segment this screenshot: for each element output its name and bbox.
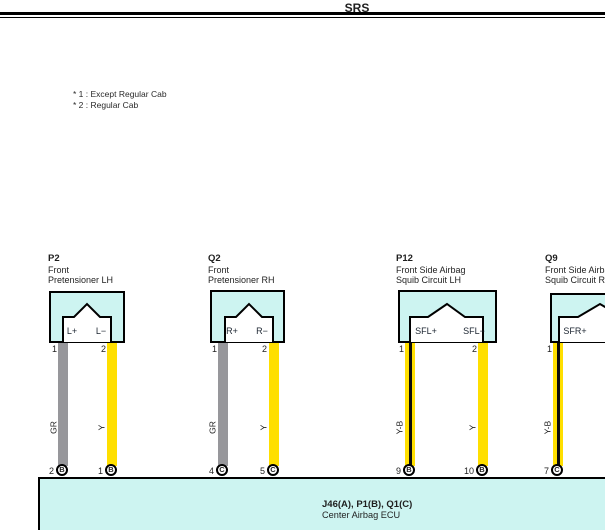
connector-name-line2: Pretensioner LH [48,275,113,285]
ecu-connector-letter-circle: B [56,464,68,476]
footnote-1: * 1 : Except Regular Cab [73,89,167,99]
terminal-label: L− [86,326,116,336]
wire-black-tracer [409,343,412,466]
ecu-connector-letter: B [108,465,113,474]
connector-id-q9: Q9 [545,253,558,264]
wire-y [107,343,117,466]
connector-name-line1: Front [48,265,69,275]
wiring-diagram-page: SRS * 1 : Except Regular Cab * 2 : Regul… [0,0,605,530]
terminal-number: 2 [247,344,267,354]
terminal-label: L+ [57,326,87,336]
wire-color-label: GR [49,408,60,448]
connector-name-line1: Front [208,265,229,275]
connector-name-line1: Front Side Airbag [396,265,466,275]
connector-name-line1: Front Side Airbag [545,265,605,275]
ecu-connector-letter: C [554,465,559,474]
wire-gr [58,343,68,466]
ecu-terminal-number: 2 [34,466,54,476]
wire-color-label: GR [208,408,219,448]
ecu-connector-letter-circle: C [551,464,563,476]
connector-id-p12: P12 [396,253,413,264]
ecu-connector-letter: C [219,465,224,474]
wire-y [478,343,488,466]
wire-y-b [553,343,563,466]
connector-id-q2: Q2 [208,253,221,264]
ecu-connector-letter: B [406,465,411,474]
ecu-connector-letter: B [479,465,484,474]
terminal-label: R+ [217,326,247,336]
ecu-connector-ids: J46(A), P1(B), Q1(C) [322,500,412,510]
connector-id-p2: P2 [48,253,60,264]
terminal-label: SFR+ [560,326,590,336]
ecu-terminal-number: 5 [245,466,265,476]
wire-color-label: Y [468,408,479,448]
header-rule-thick [0,12,605,15]
ecu-connector-letter: C [270,465,275,474]
terminal-label: R− [247,326,277,336]
terminal-number: 1 [37,344,57,354]
ecu-terminal-number: 10 [454,466,474,476]
ecu-connector-letter-circle: B [403,464,415,476]
terminal-number: 1 [384,344,404,354]
wire-color-label: Y-B [543,408,554,448]
connector-name-line2: Squib Circuit RH [545,275,605,285]
wire-color-label: Y [259,408,270,448]
terminal-number: 1 [197,344,217,354]
terminal-number: 2 [86,344,106,354]
ecu-terminal-number: 4 [194,466,214,476]
wire-gr [218,343,228,466]
terminal-label: SFL+ [411,326,441,336]
ecu-name: Center Airbag ECU [322,510,412,520]
connector-name-line2: Pretensioner RH [208,275,275,285]
header-rule-thin [0,17,605,18]
ecu-label-block: J46(A), P1(B), Q1(C) Center Airbag ECU [322,500,412,520]
footnote-2: * 2 : Regular Cab [73,100,138,110]
terminal-label: SFL− [459,326,489,336]
connector-name-line2: Squib Circuit LH [396,275,461,285]
terminal-number: 1 [532,344,552,354]
wire-y [269,343,279,466]
wire-y-b [405,343,415,466]
terminal-number: 2 [457,344,477,354]
ecu-terminal-number: 1 [83,466,103,476]
ecu-connector-letter: B [59,465,64,474]
ecu-connector-letter-circle: B [476,464,488,476]
ecu-terminal-number: 7 [529,466,549,476]
ecu-connector-letter-circle: C [267,464,279,476]
ecu-terminal-number: 9 [381,466,401,476]
wire-black-tracer [557,343,560,466]
wire-color-label: Y [97,408,108,448]
ecu-connector-letter-circle: B [105,464,117,476]
ecu-connector-letter-circle: C [216,464,228,476]
wire-color-label: Y-B [395,408,406,448]
